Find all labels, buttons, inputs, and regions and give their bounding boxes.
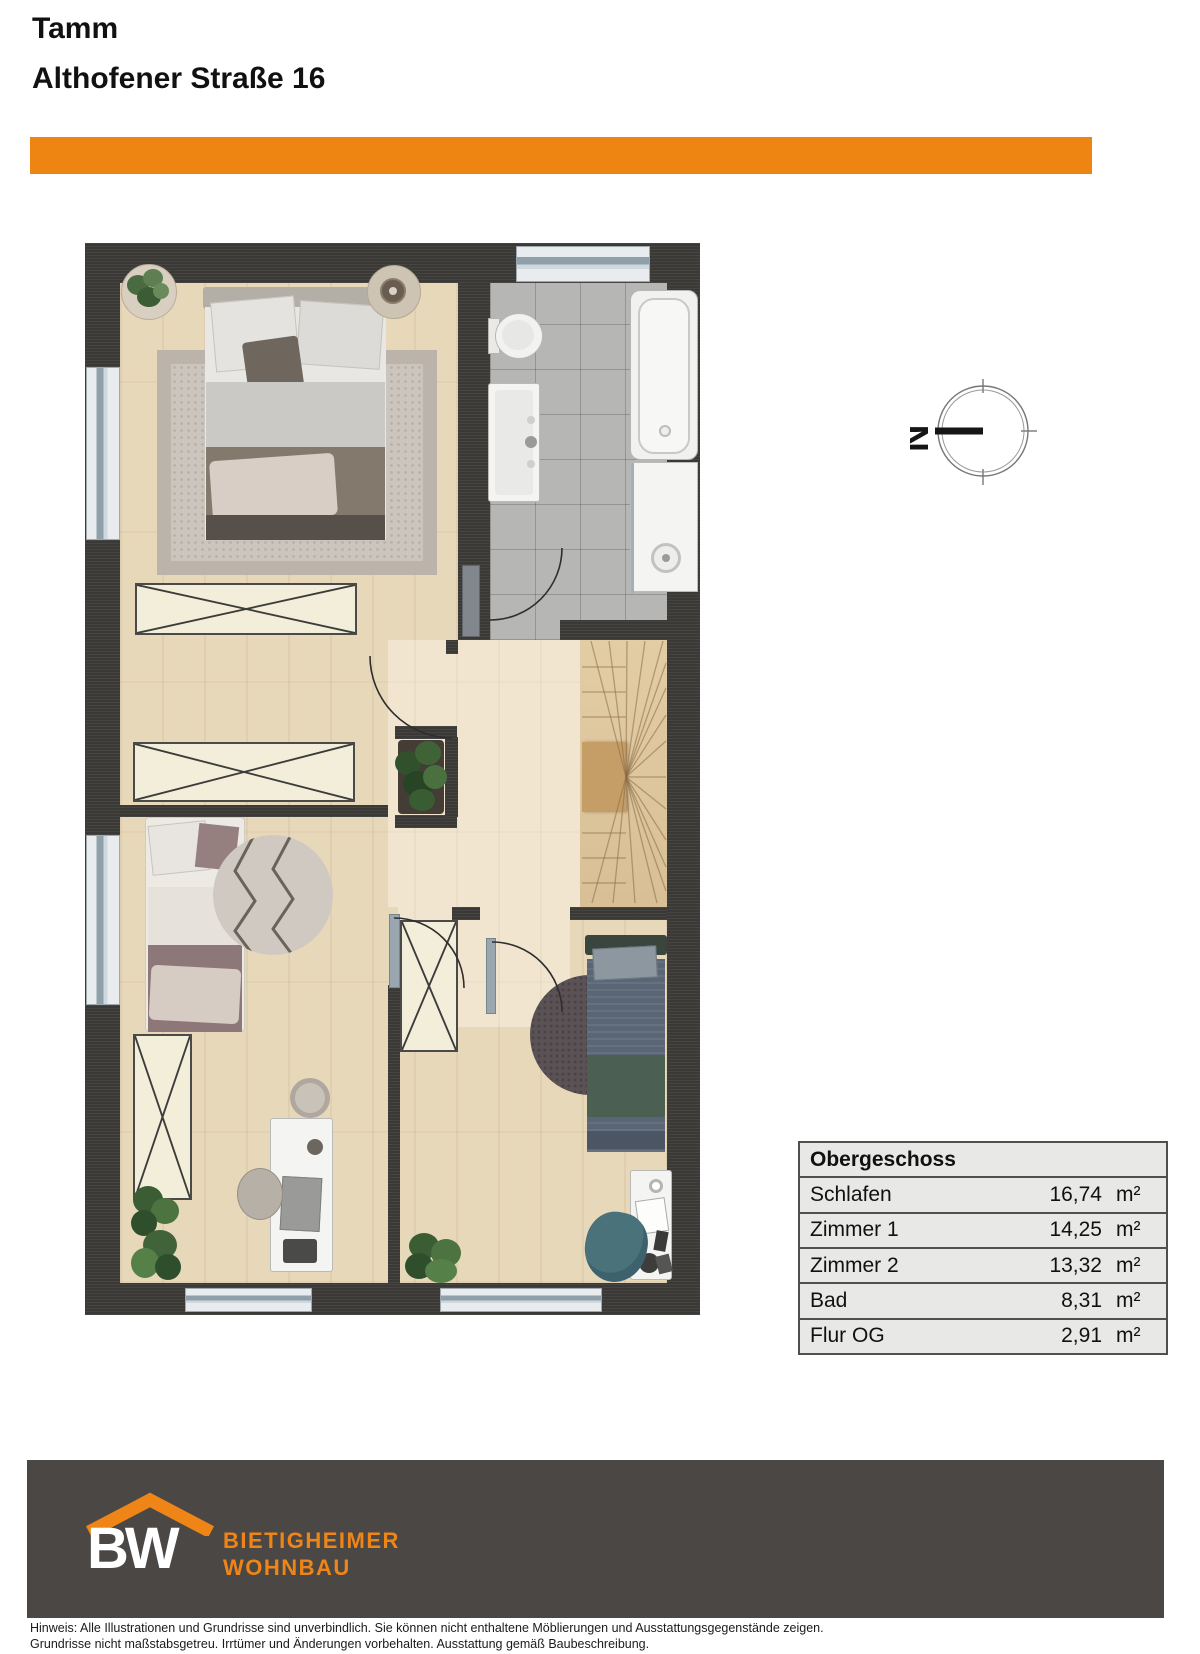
room-area: 14,25 — [1028, 1218, 1102, 1242]
logo-acronym: BW — [87, 1520, 176, 1578]
disclaimer-line2: Grundrisse nicht maßstabsgetreu. Irrtüme… — [30, 1636, 1170, 1652]
stair-treads — [582, 641, 666, 903]
room-name: Zimmer 1 — [810, 1218, 1028, 1242]
table-header: Obergeschoss — [800, 1143, 1166, 1176]
compass: N — [910, 360, 1060, 510]
area-unit: m² — [1102, 1289, 1156, 1313]
disclaimer-line1: Hinweis: Alle Illustrationen und Grundri… — [30, 1620, 1170, 1636]
brand-name-line2: WOHNBAU — [223, 1557, 351, 1579]
footer: BW BIETIGHEIMER WOHNBAU — [27, 1460, 1164, 1618]
room-name: Schlafen — [810, 1183, 1028, 1207]
table-row: Zimmer 1 14,25 m² — [800, 1212, 1166, 1247]
room-name: Zimmer 2 — [810, 1254, 1028, 1278]
table-row: Flur OG 2,91 m² — [800, 1318, 1166, 1353]
room-area: 8,31 — [1028, 1289, 1102, 1313]
room-name: Bad — [810, 1289, 1028, 1313]
area-table: Obergeschoss Schlafen 16,74 m² Zimmer 1 … — [798, 1141, 1168, 1355]
room-area: 16,74 — [1028, 1183, 1102, 1207]
room-area: 13,32 — [1028, 1254, 1102, 1278]
rug-zimmer1 — [213, 835, 333, 955]
brand-name-line1: BIETIGHEIMER — [223, 1530, 400, 1552]
disclaimer: Hinweis: Alle Illustrationen und Grundri… — [30, 1620, 1170, 1652]
table-header-label: Obergeschoss — [810, 1148, 1156, 1172]
plan-overlay — [85, 243, 700, 1315]
area-unit: m² — [1102, 1218, 1156, 1242]
table-row: Bad 8,31 m² — [800, 1282, 1166, 1317]
accent-bar — [30, 137, 1092, 174]
room-area: 2,91 — [1028, 1324, 1102, 1348]
door-arcs — [370, 548, 562, 1012]
floor-plan-sheet: Tamm Althofener Straße 16 — [0, 0, 1200, 1654]
area-unit: m² — [1102, 1183, 1156, 1207]
area-unit: m² — [1102, 1254, 1156, 1278]
room-name: Flur OG — [810, 1324, 1028, 1348]
page-title-address: Althofener Straße 16 — [32, 62, 325, 96]
page-title-city: Tamm — [32, 12, 118, 46]
north-label: N — [910, 425, 937, 452]
area-unit: m² — [1102, 1324, 1156, 1348]
table-row: Schlafen 16,74 m² — [800, 1176, 1166, 1211]
floor-plan — [85, 243, 700, 1315]
table-row: Zimmer 2 13,32 m² — [800, 1247, 1166, 1282]
